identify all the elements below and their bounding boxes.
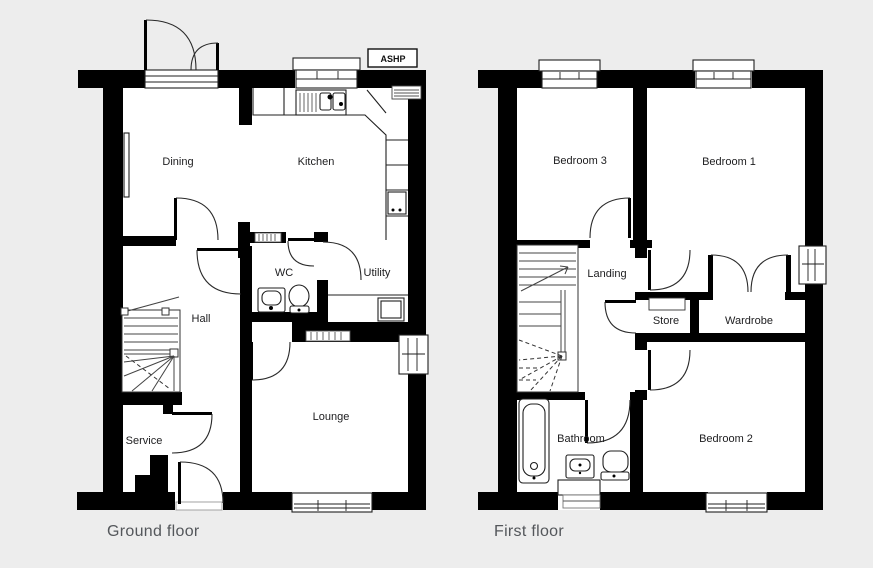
room-label-store: Store bbox=[653, 315, 679, 327]
first-floor-plan: Bedroom 3 Bedroom 1 Landing Store Wardro… bbox=[478, 60, 826, 540]
bathroom-basin bbox=[566, 455, 594, 478]
equipment-label-ashp: ASHP bbox=[380, 54, 405, 64]
kitchen-sink bbox=[296, 90, 346, 115]
kitchen-window bbox=[293, 58, 360, 88]
floor-caption-ground: Ground floor bbox=[107, 523, 200, 540]
front-door-threshold bbox=[176, 502, 222, 510]
first-floor-stairs bbox=[517, 245, 578, 392]
room-label-bedroom2: Bedroom 2 bbox=[699, 433, 753, 445]
wc-toilet bbox=[289, 285, 309, 313]
bedroom1-window bbox=[693, 60, 754, 88]
room-label-lounge: Lounge bbox=[313, 411, 350, 423]
stair-side-window bbox=[399, 335, 428, 374]
room-label-wardrobe: Wardrobe bbox=[725, 315, 773, 327]
room-label-bedroom3: Bedroom 3 bbox=[553, 155, 607, 167]
dining-radiator bbox=[124, 133, 129, 197]
room-label-hall: Hall bbox=[192, 313, 211, 325]
room-label-utility: Utility bbox=[364, 267, 391, 279]
cupboard-label-box bbox=[392, 86, 421, 99]
room-label-landing: Landing bbox=[587, 268, 626, 280]
wc-basin bbox=[258, 288, 285, 312]
ground-floor-plan: ASHP Dining Kitchen WC Utility Hall Serv… bbox=[77, 20, 428, 540]
ashp-unit: ASHP bbox=[368, 49, 417, 67]
room-label-kitchen: Kitchen bbox=[298, 156, 335, 168]
room-label-service: Service bbox=[126, 435, 163, 447]
floor-plan-drawing: ASHP Dining Kitchen WC Utility Hall Serv… bbox=[0, 0, 873, 568]
bedroom3-window bbox=[539, 60, 600, 88]
bedroom2-window bbox=[706, 493, 767, 512]
porch-roof-below bbox=[558, 480, 600, 508]
store-shelf bbox=[649, 298, 685, 310]
bedroom1-side-window bbox=[799, 246, 826, 284]
wc-vent-grille bbox=[255, 233, 281, 242]
french-door-threshold bbox=[145, 70, 218, 88]
lounge-lintel-grille bbox=[306, 331, 350, 341]
room-label-wc: WC bbox=[275, 267, 293, 279]
lounge-window bbox=[292, 493, 372, 512]
utility-appliance bbox=[378, 298, 404, 321]
room-label-dining: Dining bbox=[162, 156, 193, 168]
bathroom-toilet bbox=[601, 451, 629, 480]
floor-plan-page: ASHP Dining Kitchen WC Utility Hall Serv… bbox=[0, 0, 873, 568]
floor-caption-first: First floor bbox=[494, 523, 564, 540]
room-label-bedroom1: Bedroom 1 bbox=[702, 156, 756, 168]
ground-floor-stairs bbox=[121, 297, 180, 392]
bath bbox=[519, 399, 549, 483]
room-label-bathroom: Bathroom bbox=[557, 433, 605, 445]
